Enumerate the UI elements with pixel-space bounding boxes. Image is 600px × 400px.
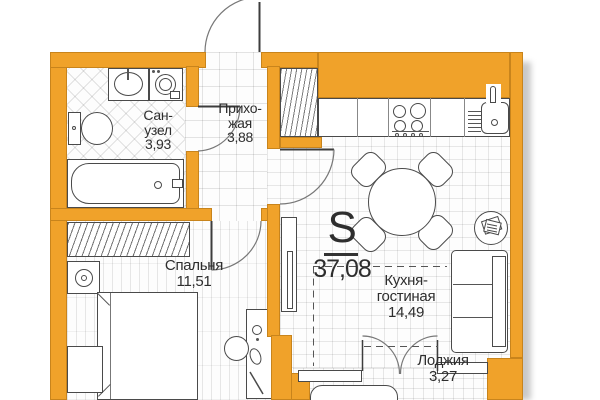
room-name: жая [202, 116, 278, 131]
total-area-symbol: S [308, 206, 376, 250]
floor-plan: Сан- узел 3,93 Прихо- жая 3,88 Спальня 1… [0, 0, 600, 400]
room-label-bathroom: Сан- узел 3,93 [118, 108, 198, 152]
room-label-kitchen-living: Кухня- гостиная 14,49 [360, 273, 452, 321]
room-name: узел [118, 123, 198, 138]
room-name: гостиная [360, 289, 452, 305]
room-area: 3,93 [118, 137, 198, 152]
total-area-underline [324, 253, 358, 256]
entrance-door-icon [205, 0, 260, 52]
room-area: 3,88 [202, 130, 278, 145]
room-area: 14,49 [360, 305, 452, 321]
magazine-icon [482, 217, 502, 235]
room-area: 11,51 [148, 274, 240, 290]
room-name: Сан- [118, 108, 198, 123]
plan-linework [0, 0, 600, 400]
room-name: Лоджия [400, 353, 486, 369]
room-area: 3,27 [400, 369, 486, 385]
vanity-mirror-line [250, 372, 263, 394]
room-label-bedroom: Спальня 11,51 [148, 258, 240, 290]
room-label-hallway: Прихо- жая 3,88 [202, 101, 278, 145]
room-name: Прихо- [202, 101, 278, 116]
room-label-loggia: Лоджия 3,27 [400, 353, 486, 385]
total-area-label: S 37,08 [308, 206, 376, 282]
room-name: Спальня [148, 258, 240, 274]
room-name: Кухня- [360, 273, 452, 289]
kitchen-door-icon [280, 150, 334, 205]
